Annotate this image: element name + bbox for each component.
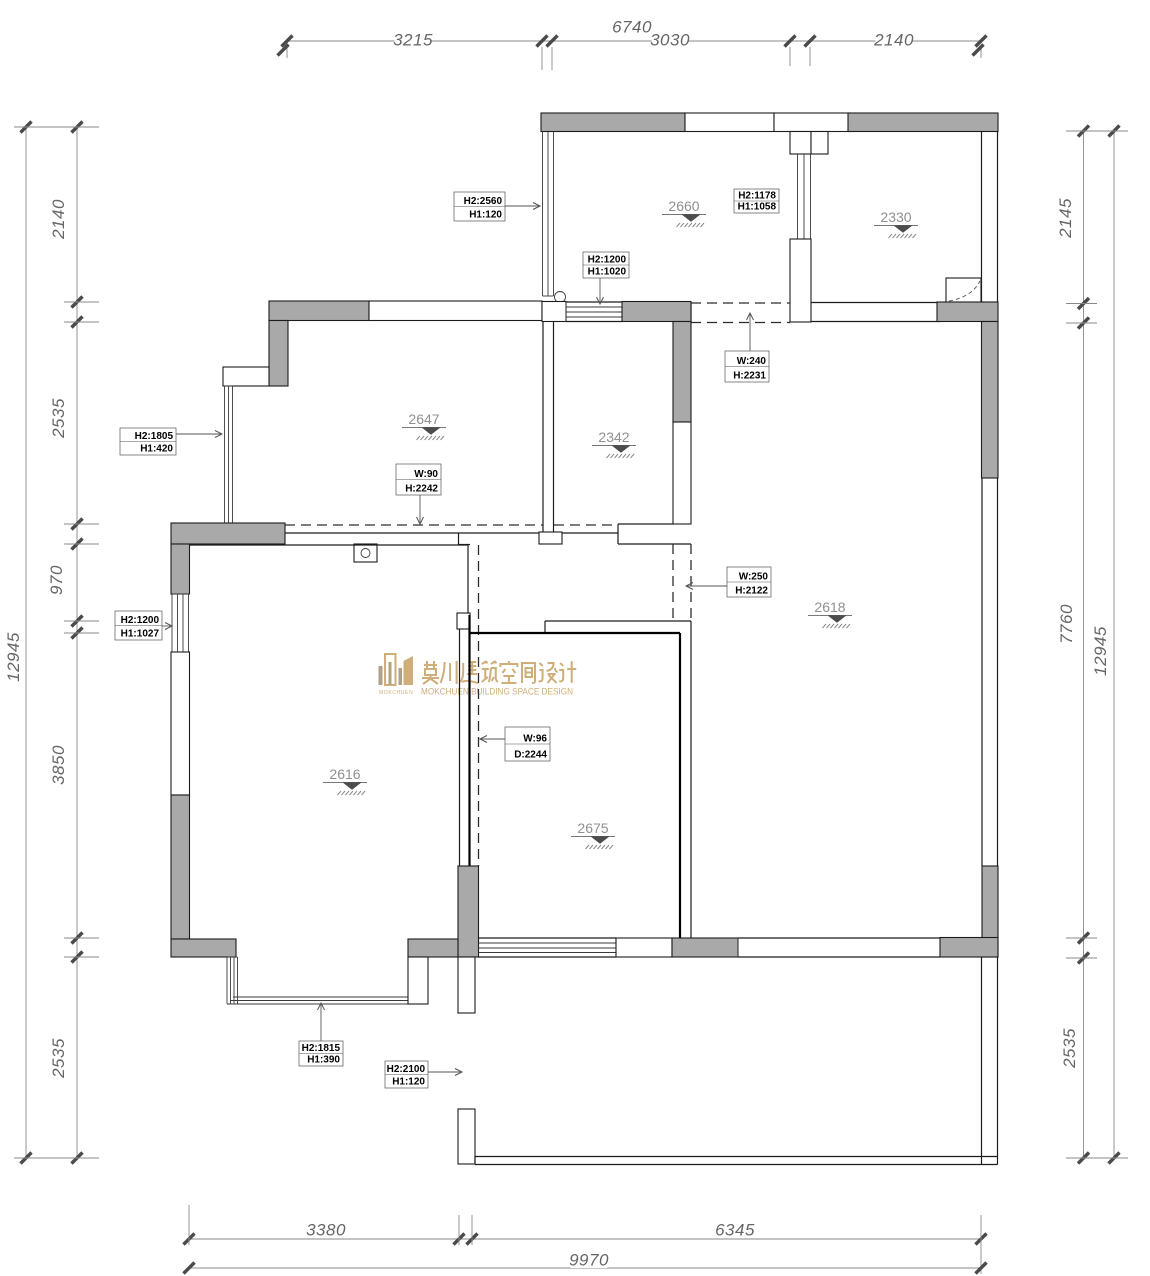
svg-text:H2:1200: H2:1200 bbox=[121, 615, 160, 626]
svg-text:970: 970 bbox=[47, 565, 66, 595]
svg-text:2675: 2675 bbox=[577, 820, 608, 836]
svg-text:12945: 12945 bbox=[4, 632, 23, 682]
svg-text:W:240: W:240 bbox=[737, 356, 767, 367]
svg-text:12945: 12945 bbox=[1091, 626, 1110, 676]
svg-text:H2:2560: H2:2560 bbox=[464, 196, 503, 207]
svg-text:2618: 2618 bbox=[814, 599, 845, 615]
svg-text:H:2122: H:2122 bbox=[735, 586, 768, 597]
svg-text:7760: 7760 bbox=[1057, 604, 1076, 644]
svg-text:H1:120: H1:120 bbox=[392, 1077, 425, 1088]
svg-text:2535: 2535 bbox=[49, 1038, 68, 1079]
svg-text:H2:1815: H2:1815 bbox=[302, 1043, 341, 1054]
svg-text:2342: 2342 bbox=[598, 429, 629, 445]
svg-text:2535: 2535 bbox=[1060, 1028, 1079, 1069]
svg-text:2535: 2535 bbox=[49, 398, 68, 439]
svg-text:2140: 2140 bbox=[873, 31, 914, 50]
svg-text:2140: 2140 bbox=[49, 199, 68, 240]
svg-text:MOKCHUEN: MOKCHUEN bbox=[379, 690, 413, 696]
svg-text:W:96: W:96 bbox=[523, 734, 547, 745]
svg-text:2660: 2660 bbox=[668, 198, 699, 214]
svg-text:H2:1200: H2:1200 bbox=[588, 255, 627, 266]
svg-text:H2:1805: H2:1805 bbox=[135, 431, 174, 442]
svg-text:H1:390: H1:390 bbox=[307, 1055, 340, 1066]
svg-text:3850: 3850 bbox=[49, 745, 68, 785]
svg-text:H1:1027: H1:1027 bbox=[121, 629, 160, 640]
svg-text:2647: 2647 bbox=[408, 411, 439, 427]
svg-text:6345: 6345 bbox=[715, 1221, 755, 1240]
svg-text:D:2244: D:2244 bbox=[514, 750, 547, 761]
svg-text:9970: 9970 bbox=[569, 1251, 609, 1270]
svg-text:H2:1178: H2:1178 bbox=[738, 191, 776, 202]
svg-text:MOKCHUEN BUILDING SPACE DESIGN: MOKCHUEN BUILDING SPACE DESIGN bbox=[421, 687, 573, 698]
svg-text:H1:420: H1:420 bbox=[140, 444, 173, 455]
svg-text:H1:1058: H1:1058 bbox=[738, 202, 777, 213]
svg-text:H:2231: H:2231 bbox=[733, 371, 766, 382]
svg-text:2330: 2330 bbox=[880, 209, 911, 225]
svg-text:2616: 2616 bbox=[329, 766, 360, 782]
svg-text:H1:1020: H1:1020 bbox=[588, 267, 627, 278]
svg-text:3215: 3215 bbox=[393, 31, 433, 50]
svg-text:3030: 3030 bbox=[650, 31, 690, 50]
svg-text:H:2242: H:2242 bbox=[405, 484, 438, 495]
svg-text:2145: 2145 bbox=[1056, 198, 1075, 239]
svg-text:H2:2100: H2:2100 bbox=[387, 1064, 426, 1075]
svg-text:W:250: W:250 bbox=[739, 572, 769, 583]
svg-text:H1:120: H1:120 bbox=[469, 210, 502, 221]
svg-text:3380: 3380 bbox=[306, 1221, 346, 1240]
svg-text:W:90: W:90 bbox=[414, 469, 438, 480]
svg-text:6740: 6740 bbox=[612, 18, 652, 37]
